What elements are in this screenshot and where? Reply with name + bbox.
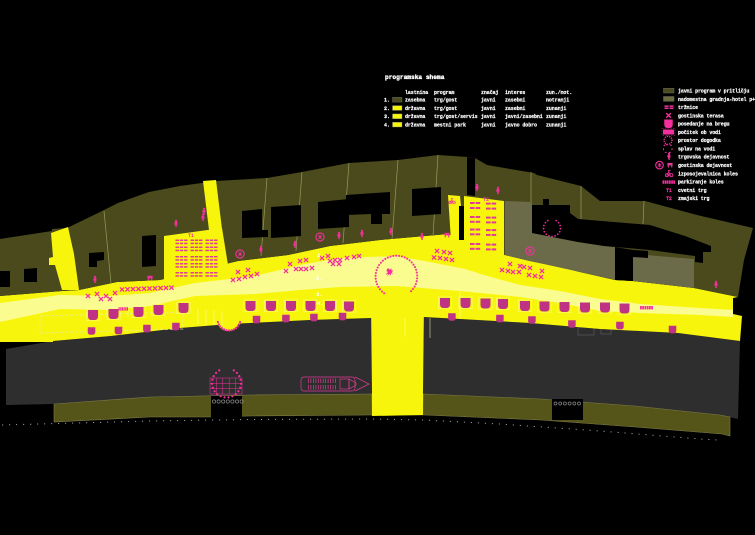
svg-text:javni: javni [481,123,496,129]
svg-text:prostor dogodka: prostor dogodka [678,138,721,144]
svg-text:gostinska terasa: gostinska terasa [678,113,724,119]
svg-text:T2: T2 [666,196,672,202]
svg-text:trg/gost/servis: trg/gost/servis [434,114,478,120]
svg-text:državna: državna [405,114,425,120]
svg-text:3.: 3. [316,291,323,298]
svg-text:programska shema: programska shema [385,74,445,81]
svg-text:T1: T1 [666,188,672,194]
svg-text:zasebni: zasebni [505,106,525,112]
svg-text:zun./not.: zun./not. [546,90,572,96]
svg-text:javni program v pritličju: javni program v pritličju [678,89,749,95]
svg-text:program: program [434,90,454,96]
svg-text:2.: 2. [316,275,323,282]
svg-text:javni: javni [481,106,496,112]
svg-text:zunanji: zunanji [546,106,566,112]
svg-text:3.: 3. [384,114,390,120]
svg-text:lastnina: lastnina [405,90,428,96]
svg-text:državna: državna [405,123,425,129]
svg-text:tržnice: tržnice [678,105,698,111]
svg-text:zunanji: zunanji [546,114,566,120]
svg-text:zasebni: zasebni [505,98,525,104]
svg-text:zmajski trg: zmajski trg [678,196,710,202]
svg-text:splav na vodi: splav na vodi [678,147,715,153]
svg-text:mestni park: mestni park [434,123,466,129]
svg-text:počitek ob vodi: počitek ob vodi [678,130,721,136]
svg-text:državna: državna [405,106,425,112]
svg-text:notranji: notranji [546,98,569,104]
svg-text:1.: 1. [317,252,324,259]
svg-text:značaj: značaj [481,90,499,96]
svg-text:javni: javni [481,98,496,104]
svg-text:trg/gost: trg/gost [434,106,457,112]
svg-text:zunanji: zunanji [546,123,566,129]
svg-text:parkiranje koles: parkiranje koles [678,180,724,186]
svg-text:1.: 1. [384,98,390,104]
svg-text:posedanje na bregu: posedanje na bregu [678,122,729,128]
svg-text:zasebna: zasebna [405,98,425,104]
svg-text:gostinska dejavnost: gostinska dejavnost [678,163,732,169]
svg-text:interes: interes [505,90,525,96]
svg-text:4.: 4. [384,123,390,129]
svg-text:nadomestna gradnja-hotel p+2: nadomestna gradnja-hotel p+2 [678,97,755,103]
svg-text:trg/gost: trg/gost [434,98,457,104]
svg-text:T1: T1 [188,233,194,239]
svg-text:cvetni trg: cvetni trg [678,188,707,194]
svg-text:javni/zasebni: javni/zasebni [505,114,543,120]
svg-text:2.: 2. [384,106,390,112]
svg-text:4.: 4. [317,300,324,307]
svg-text:javni: javni [481,114,496,120]
svg-text:T2: T2 [483,197,489,203]
svg-text:izposojevalnica koles: izposojevalnica koles [678,171,738,177]
svg-text:javno dobro: javno dobro [505,123,537,129]
svg-text:trgovska dejavnost: trgovska dejavnost [678,155,729,161]
